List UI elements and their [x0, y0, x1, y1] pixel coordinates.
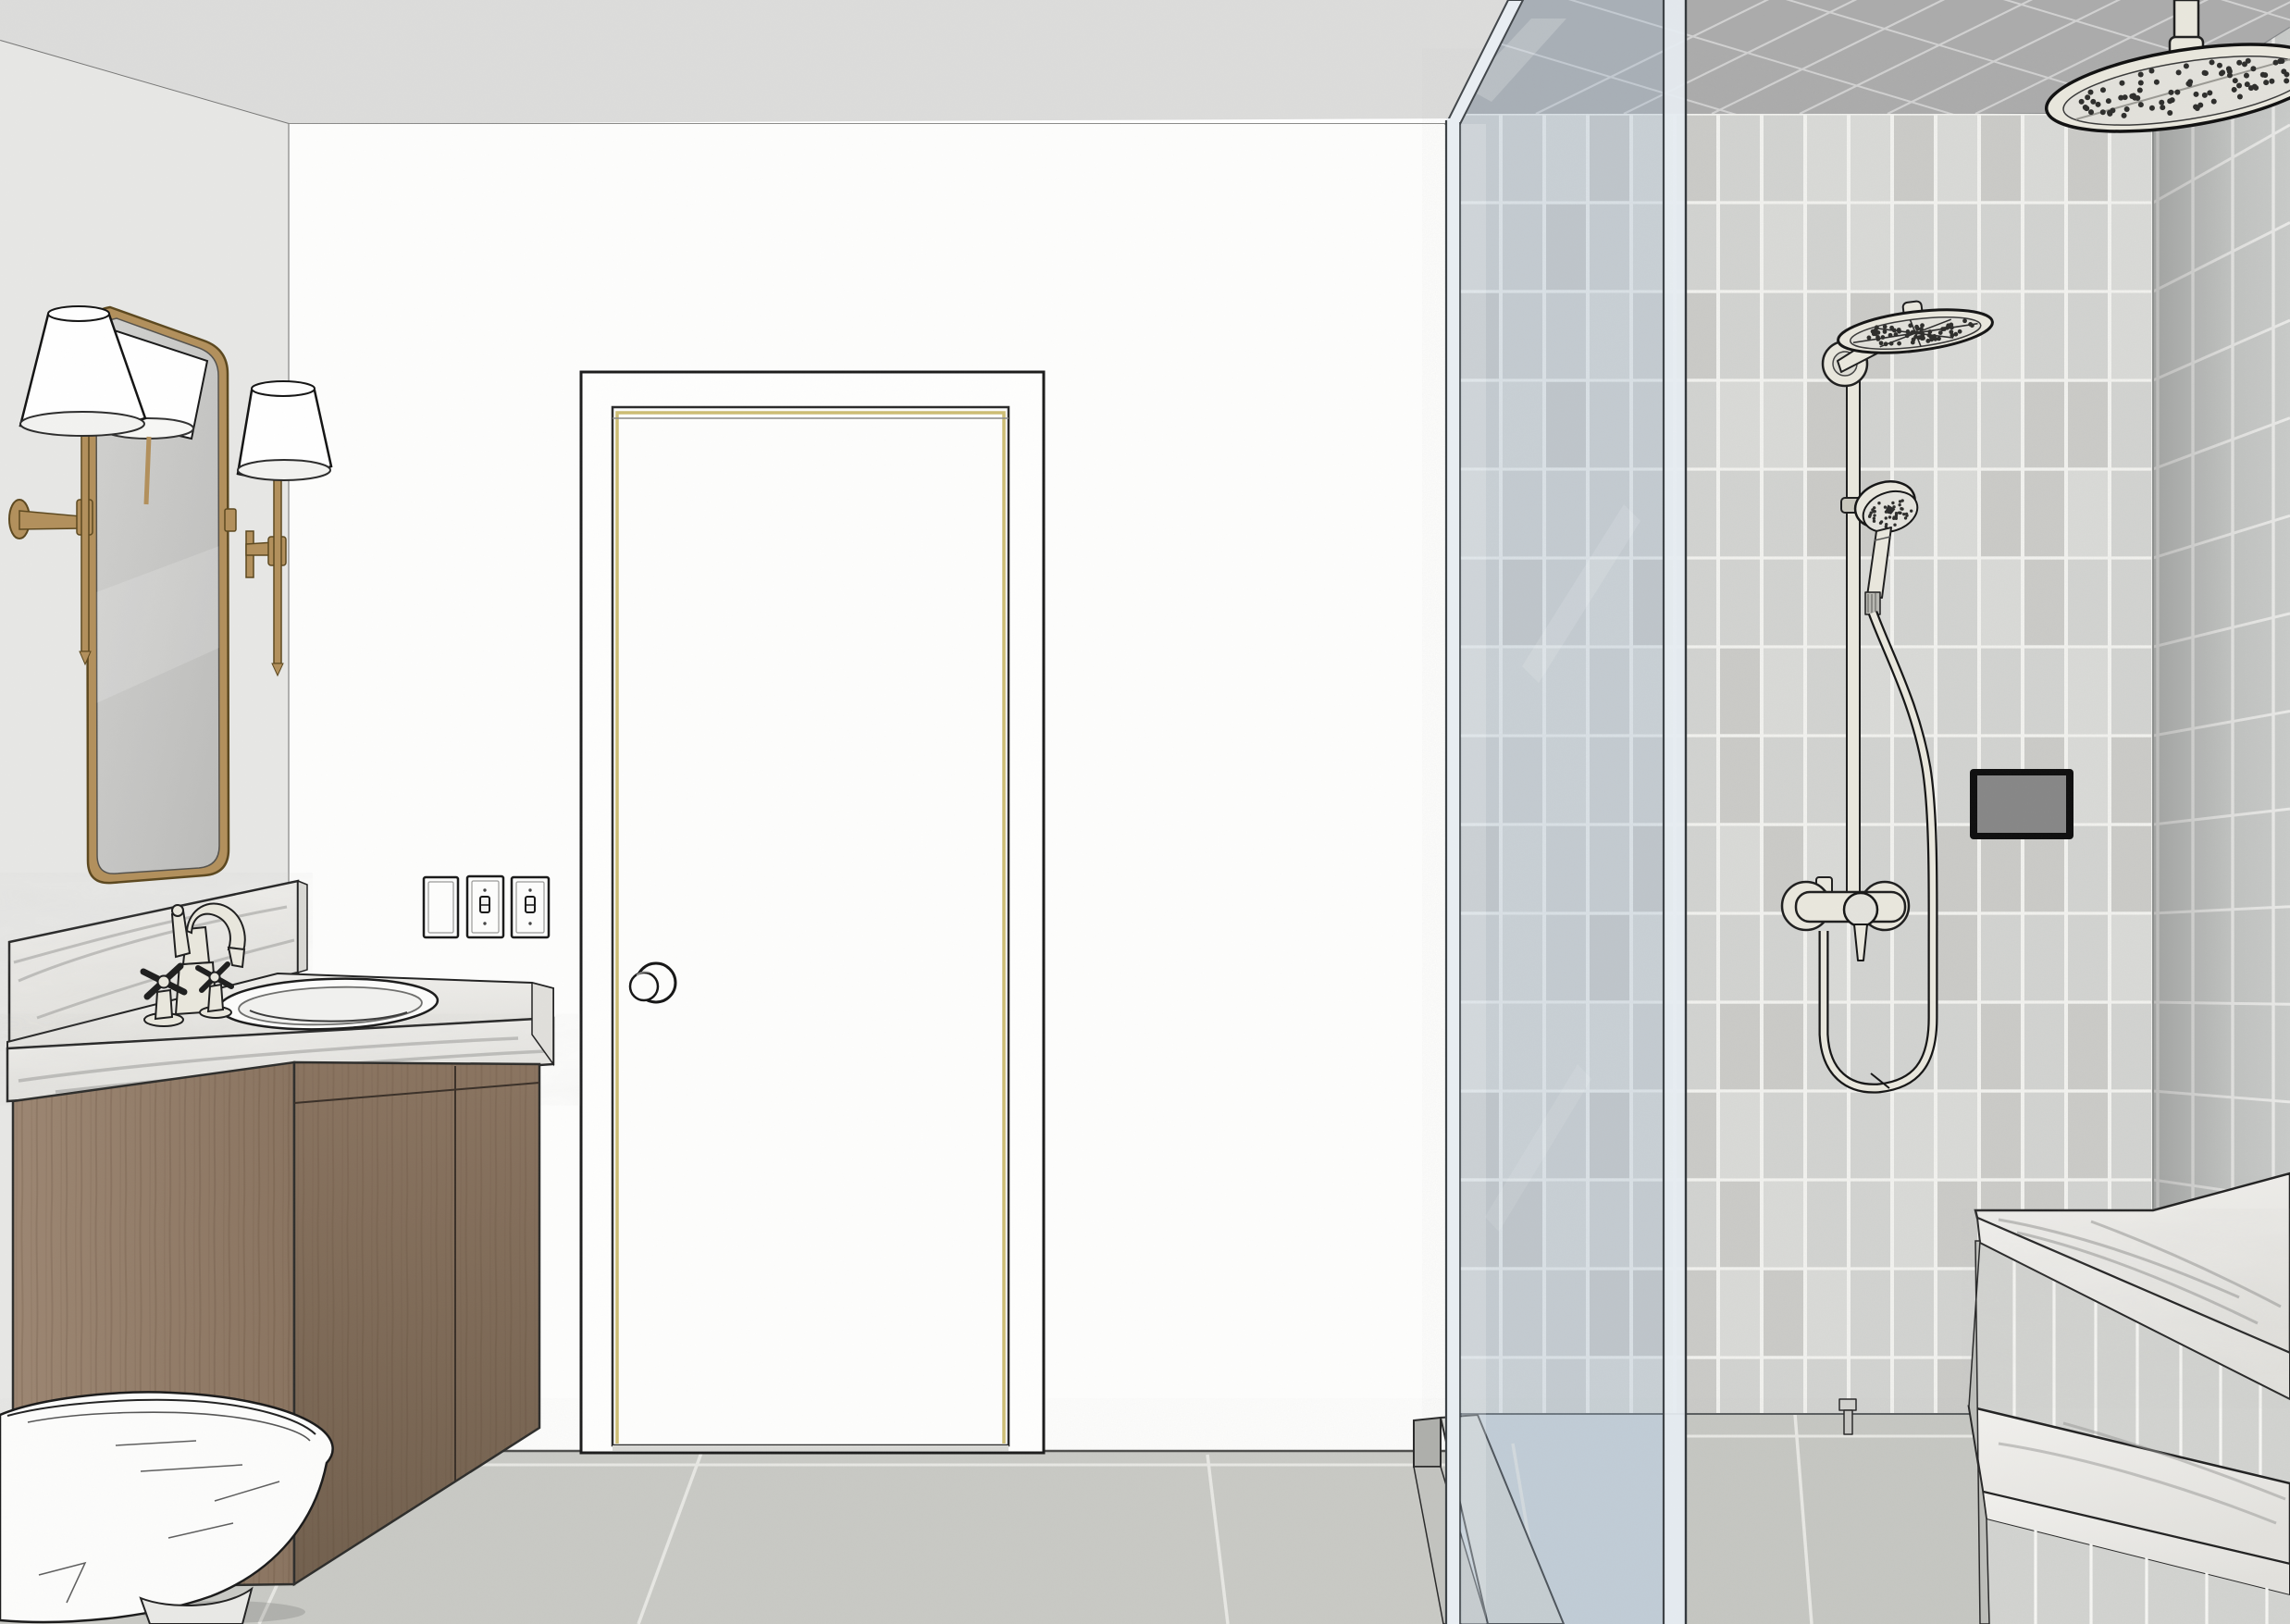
- bathroom-rendering: [0, 0, 2290, 1624]
- render-grain: [0, 0, 2290, 1624]
